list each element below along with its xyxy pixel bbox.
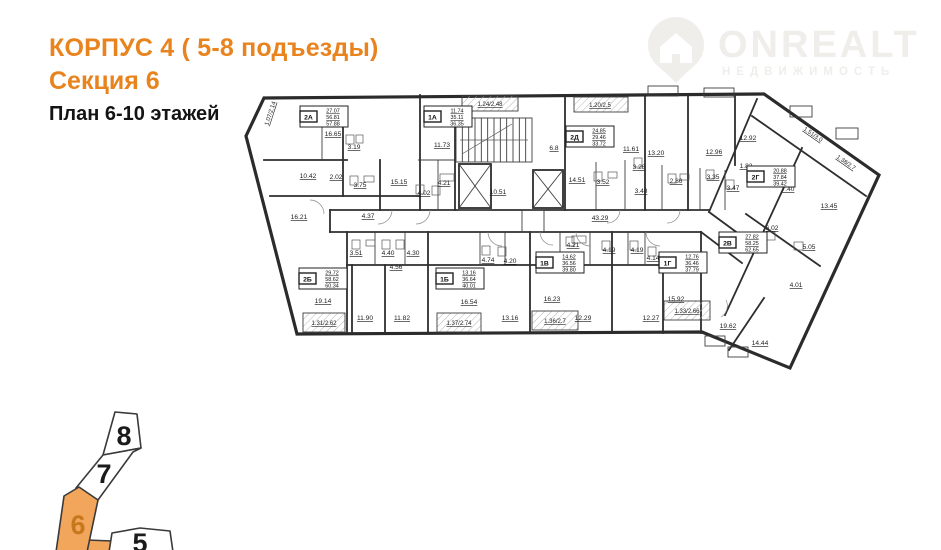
minimap-section-number-5: 5 — [132, 528, 147, 550]
apartment-code: 2Г — [752, 175, 760, 182]
apartment-area-value: 40.01 — [462, 284, 476, 290]
room-area-label: 16.65 — [325, 131, 342, 138]
room-area-label: 4.01 — [790, 282, 803, 289]
room-area-label: 3.51 — [350, 250, 363, 257]
apartment-label: 1Б13.1636.6440.01 — [436, 268, 484, 290]
apartment-area-value: 57.88 — [326, 122, 340, 128]
apartment-area-value: 58.25 — [745, 241, 759, 247]
apartment-area-value: 62.65 — [745, 248, 759, 254]
room-area-label: 3.35 — [707, 174, 720, 181]
apartment-area-value: 36.46 — [685, 261, 699, 267]
room-area-label: 5.05 — [803, 244, 816, 251]
room-area-label: 4.40 — [382, 250, 395, 257]
room-area-label: 12.29 — [575, 315, 592, 322]
room-area-label: 19.62 — [720, 323, 737, 330]
room-area-label: 3.48 — [635, 188, 648, 195]
room-area-label: 15.92 — [668, 296, 685, 303]
room-area-label: 4.02 — [418, 190, 431, 197]
room-area-label: 4.37 — [362, 213, 375, 220]
apartment-code: 1А — [428, 115, 437, 122]
apartment-area-value: 29.46 — [592, 135, 606, 141]
apartment-label: 1А11.7435.1136.35 — [424, 106, 472, 128]
room-area-label: 6.02 — [766, 225, 779, 232]
room-area-label: 16.54 — [461, 299, 478, 306]
structure-box — [836, 128, 858, 139]
room-area-label: 4.21 — [567, 242, 580, 249]
room-area-label: 13.45 — [821, 203, 838, 210]
apartment-area-value: 37.79 — [685, 268, 699, 274]
apartment-label: 2А27.0756.8157.88 — [300, 106, 348, 128]
room-area-label: 12.96 — [706, 149, 723, 156]
apartment-label: 2Б29.7258.6260.34 — [299, 268, 347, 290]
apartment-label: 2Г20.8837.8439.42 — [747, 166, 795, 188]
apartment-area-value: 36.35 — [450, 122, 464, 128]
apartment-label: 1Г12.7636.4637.79 — [659, 252, 707, 274]
room-area-label: 3.75 — [354, 182, 367, 189]
balcony-dimension-label: 1.36/2.7 — [544, 319, 566, 325]
room-area-label: 14.51 — [569, 177, 586, 184]
apartment-code: 2А — [304, 115, 313, 122]
balcony-dimension-label: 1.31/2.62 — [311, 321, 337, 327]
balcony-dimension-label: 1.24/2.48 — [477, 102, 503, 108]
elevator-shaft — [533, 170, 563, 208]
room-area-label: 4.14 — [647, 255, 660, 262]
room-area-label: 19.14 — [315, 298, 332, 305]
room-area-label: 43.29 — [592, 215, 609, 222]
room-area-label: 2.02 — [330, 174, 343, 181]
apartment-area-value: 11.74 — [450, 109, 463, 115]
apartment-area-value: 14.62 — [562, 255, 576, 261]
apartment-area-value: 39.42 — [773, 182, 787, 188]
apartment-label: 1В14.6236.5639.80 — [536, 252, 584, 274]
room-area-label: 16.23 — [544, 296, 561, 303]
room-area-label: 2.86 — [670, 178, 683, 185]
balcony-dimension-label: 1.37/2.74 — [446, 321, 472, 327]
apartment-area-value: 27.07 — [326, 109, 340, 115]
room-area-label: 3.28 — [633, 164, 646, 171]
room-area-label: 12.92 — [740, 135, 757, 142]
room-area-label: 10.51 — [490, 189, 507, 196]
building-sections-minimap: 8765 — [28, 398, 218, 550]
apartment-area-value: 27.82 — [745, 235, 759, 241]
apartment-area-value: 56.81 — [326, 115, 340, 121]
apartment-area-value: 33.72 — [592, 142, 606, 148]
apartment-label: 2В27.8258.2562.65 — [719, 232, 767, 254]
room-area-label: 12.27 — [643, 315, 660, 322]
apartment-area-value: 58.62 — [325, 277, 339, 283]
room-area-label: 4.30 — [407, 250, 420, 257]
room-area-label: 3.47 — [727, 185, 740, 192]
apartment-area-value: 60.34 — [325, 284, 339, 290]
room-area-label: 11.73 — [434, 142, 450, 149]
room-area-label: 3.52 — [597, 179, 610, 186]
apartment-code: 2В — [723, 241, 732, 248]
room-area-label: 4.20 — [504, 258, 517, 265]
room-area-label: 14.44 — [752, 340, 769, 347]
apartment-area-value: 29.72 — [325, 271, 339, 277]
apartment-area-value: 36.56 — [562, 261, 576, 267]
minimap-section-number-6: 6 — [70, 510, 85, 540]
apartment-area-value: 36.64 — [462, 277, 476, 283]
page: КОРПУС 4 ( 5-8 подъезды) Секция 6 План 6… — [0, 0, 941, 550]
room-area-label: 3.19 — [348, 144, 361, 151]
balcony-dimension-label: 1.33/2.66 — [674, 309, 700, 315]
room-area-label: 15.15 — [391, 179, 408, 186]
minimap-section-number-7: 7 — [96, 459, 111, 489]
minimap-section-number-8: 8 — [116, 421, 131, 451]
apartment-area-value: 37.84 — [773, 175, 787, 181]
room-area-label: 10.42 — [300, 173, 317, 180]
apartment-code: 1В — [540, 261, 549, 268]
room-area-label: 4.74 — [482, 257, 495, 264]
room-area-label: 13.20 — [648, 150, 665, 157]
apartment-area-value: 39.80 — [562, 268, 576, 274]
room-area-label: 4.19 — [603, 247, 616, 254]
room-area-label: 4.19 — [631, 247, 644, 254]
room-area-label: 6.8 — [549, 145, 558, 152]
apartment-code: 1Г — [664, 261, 672, 268]
apartment-code: 1Б — [440, 277, 449, 284]
apartment-label: 2Д24.8529.4633.72 — [566, 126, 614, 148]
room-area-label: 13.16 — [502, 315, 519, 322]
apartment-area-value: 12.76 — [685, 255, 699, 261]
room-area-label: 4.21 — [438, 180, 451, 187]
apartment-area-value: 13.16 — [462, 271, 476, 277]
apartment-area-value: 24.85 — [592, 129, 606, 135]
apartment-code: 2Д — [570, 135, 579, 142]
elevator-shaft — [459, 164, 491, 208]
room-area-label: 11.82 — [394, 315, 410, 322]
balcony-dimension-label: 1.20/2.5 — [589, 103, 611, 109]
apartment-area-value: 35.11 — [450, 115, 463, 121]
room-area-label: 11.90 — [357, 315, 373, 322]
room-area-label: 16.21 — [291, 214, 308, 221]
room-area-label: 4.56 — [390, 264, 403, 271]
room-area-label: 11.61 — [623, 146, 639, 153]
apartment-code: 2Б — [303, 277, 312, 284]
apartment-area-value: 20.88 — [773, 169, 787, 175]
